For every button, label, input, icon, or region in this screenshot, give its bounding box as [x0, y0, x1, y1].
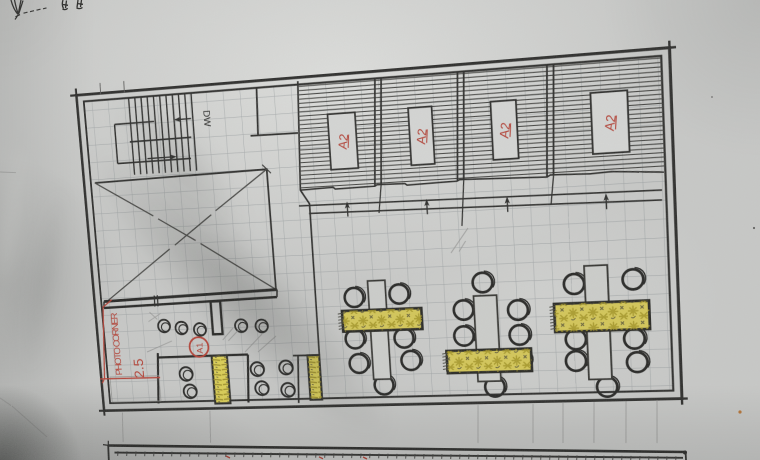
svg-text:2.5: 2.5 [130, 358, 147, 378]
